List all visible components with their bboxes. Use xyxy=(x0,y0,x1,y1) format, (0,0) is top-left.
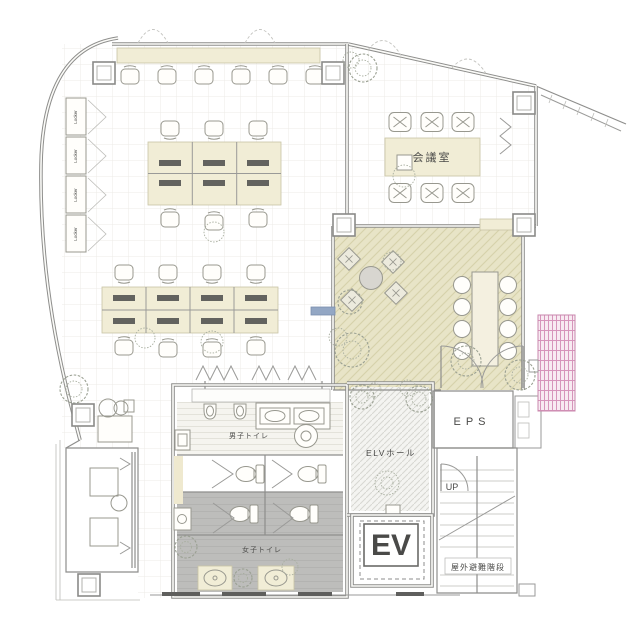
elevator-label: EV xyxy=(371,529,411,562)
floor-plan: 会議室 ELVホール EV EPS UP 屋外避難階段 男子トイレ 女子トイレ … xyxy=(0,0,640,638)
bottom-wall xyxy=(150,592,460,596)
table-equipment xyxy=(397,155,412,170)
stool-icon xyxy=(454,277,471,294)
column xyxy=(333,214,355,236)
locker-label: Locker xyxy=(73,188,78,202)
cleaning-sink xyxy=(175,430,190,450)
cafe-table xyxy=(360,267,383,290)
toilet-icon xyxy=(236,465,264,483)
mens-toilet-label: 男子トイレ xyxy=(229,432,269,440)
urinal-icon xyxy=(234,404,246,419)
corridor-floor-2 xyxy=(138,448,173,598)
up-label: UP xyxy=(446,482,459,492)
locker-label: Locker xyxy=(73,110,78,124)
stool-icon xyxy=(454,299,471,316)
window-counter xyxy=(117,48,320,63)
urinal-icon xyxy=(204,404,216,419)
column xyxy=(513,92,535,114)
wash-fountain xyxy=(295,425,318,448)
toilet-icon xyxy=(298,465,326,483)
lattice-door xyxy=(529,360,538,372)
floor-plan-drawing: 会議室 ELVホール EV EPS UP 屋外避難階段 男子トイレ 女子トイレ … xyxy=(0,0,640,638)
stool-icon xyxy=(500,299,517,316)
duct-space xyxy=(515,396,541,448)
elv-hall-label: ELVホール xyxy=(366,448,416,458)
womens-toilet-label: 女子トイレ xyxy=(242,545,282,554)
stool-icon xyxy=(500,321,517,338)
eps-label: EPS xyxy=(453,416,490,428)
stool-icon xyxy=(500,277,517,294)
sliding-door xyxy=(480,219,513,230)
meeting-chair-icon xyxy=(452,184,474,203)
meeting-chair-icon xyxy=(421,113,443,132)
locker-label: Locker xyxy=(73,227,78,241)
corner-post xyxy=(519,584,535,596)
desk-cluster-1 xyxy=(148,121,281,242)
meeting-chair-icon xyxy=(421,184,443,203)
column xyxy=(78,574,100,596)
outdoor-stairs-label: 屋外避難階段 xyxy=(451,562,505,572)
meeting-room-label: 会議室 xyxy=(413,150,452,164)
toilet-icon xyxy=(230,505,258,523)
column xyxy=(72,404,94,426)
column xyxy=(93,62,115,84)
mop-sink xyxy=(174,508,191,530)
toilet-icon xyxy=(290,505,318,523)
column xyxy=(513,214,535,236)
meeting-chair-icon xyxy=(452,113,474,132)
locker-label: Locker xyxy=(73,149,78,163)
long-table xyxy=(472,272,498,366)
stool-icon xyxy=(454,321,471,338)
shelf-counter xyxy=(192,389,330,402)
meeting-chair-icon xyxy=(389,113,411,132)
balcony-lattice xyxy=(538,315,575,411)
column xyxy=(322,62,344,84)
wall-strip xyxy=(174,456,183,504)
wall-equipment xyxy=(311,307,335,315)
equipment xyxy=(98,416,132,442)
